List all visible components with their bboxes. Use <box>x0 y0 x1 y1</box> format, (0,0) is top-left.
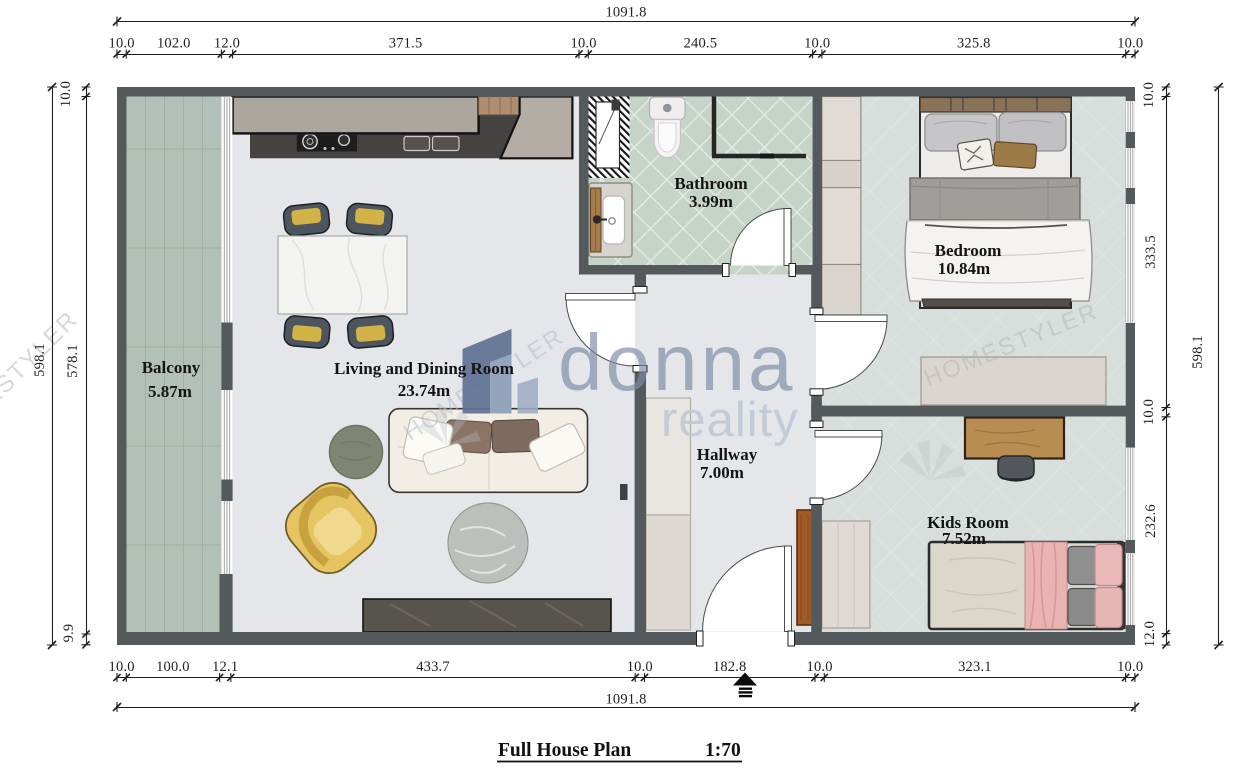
svg-text:Bathroom: Bathroom <box>674 174 747 193</box>
svg-text:12.0: 12.0 <box>214 36 240 52</box>
svg-text:598.1: 598.1 <box>1190 335 1206 369</box>
svg-text:1091.8: 1091.8 <box>605 5 646 21</box>
svg-text:433.7: 433.7 <box>416 659 450 675</box>
svg-text:3.99m: 3.99m <box>689 192 733 211</box>
svg-text:10.0: 10.0 <box>1117 36 1143 52</box>
svg-text:23.74m: 23.74m <box>398 381 450 400</box>
svg-text:5.87m: 5.87m <box>148 382 192 401</box>
svg-text:333.5: 333.5 <box>1143 235 1159 269</box>
svg-text:323.1: 323.1 <box>958 659 992 675</box>
svg-text:232.6: 232.6 <box>1143 504 1159 538</box>
svg-text:1091.8: 1091.8 <box>605 692 646 708</box>
svg-text:10.0: 10.0 <box>1141 82 1157 108</box>
svg-text:Full House Plan: Full House Plan <box>498 740 631 761</box>
svg-text:100.0: 100.0 <box>156 659 190 675</box>
svg-text:240.5: 240.5 <box>684 36 718 52</box>
svg-text:10.0: 10.0 <box>627 659 653 675</box>
svg-text:1:70: 1:70 <box>705 740 741 761</box>
svg-text:10.0: 10.0 <box>109 36 135 52</box>
svg-text:7.52m: 7.52m <box>942 529 986 548</box>
svg-text:Bedroom: Bedroom <box>935 241 1002 260</box>
svg-text:12.1: 12.1 <box>212 659 238 675</box>
svg-text:7.00m: 7.00m <box>700 463 744 482</box>
svg-text:reality: reality <box>661 393 799 447</box>
svg-text:325.8: 325.8 <box>957 36 991 52</box>
svg-text:182.8: 182.8 <box>713 659 747 675</box>
svg-text:10.0: 10.0 <box>571 36 597 52</box>
svg-text:10.0: 10.0 <box>1117 659 1143 675</box>
svg-text:12.0: 12.0 <box>1142 621 1158 647</box>
svg-text:10.84m: 10.84m <box>938 259 990 278</box>
svg-text:102.0: 102.0 <box>157 36 191 52</box>
svg-text:10.0: 10.0 <box>807 659 833 675</box>
svg-text:10.0: 10.0 <box>1141 399 1157 425</box>
svg-text:9.9: 9.9 <box>61 624 77 643</box>
svg-text:Hallway: Hallway <box>697 445 758 464</box>
svg-text:371.5: 371.5 <box>389 36 423 52</box>
svg-text:10.0: 10.0 <box>804 36 830 52</box>
svg-text:598.1: 598.1 <box>32 343 48 377</box>
svg-text:Balcony: Balcony <box>142 358 201 377</box>
svg-text:10.0: 10.0 <box>58 81 74 107</box>
svg-text:10.0: 10.0 <box>109 659 135 675</box>
svg-text:Living and Dining Room: Living and Dining Room <box>334 359 514 378</box>
svg-text:578.1: 578.1 <box>65 344 81 378</box>
